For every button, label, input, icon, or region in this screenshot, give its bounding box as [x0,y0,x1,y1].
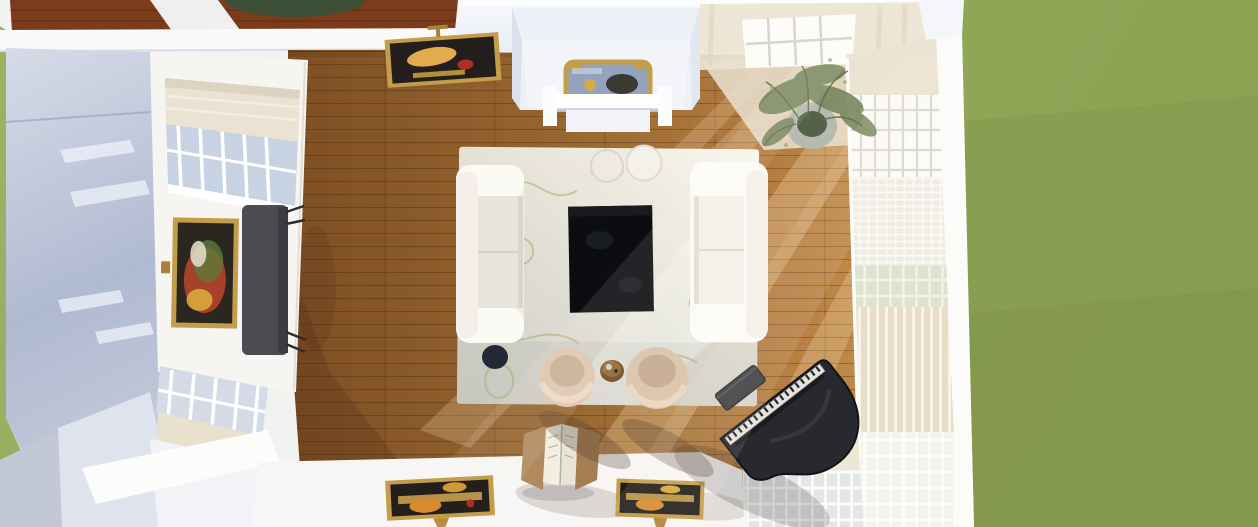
round-side-table-large [627,146,662,181]
hearth [566,110,650,132]
left-wall [150,52,308,392]
left-wall-window [165,78,300,215]
top-right-window [742,14,856,68]
desk-shadow [296,226,336,350]
upper-room [10,0,458,33]
sofa-left [456,165,524,343]
floorplan-render [0,0,1258,527]
picture-light [161,261,170,273]
round-side-table-small [591,150,623,182]
ottoman [482,345,508,369]
armchair-right [626,347,688,409]
mantel-shelf [556,94,660,110]
scene-canvas [0,0,1258,527]
